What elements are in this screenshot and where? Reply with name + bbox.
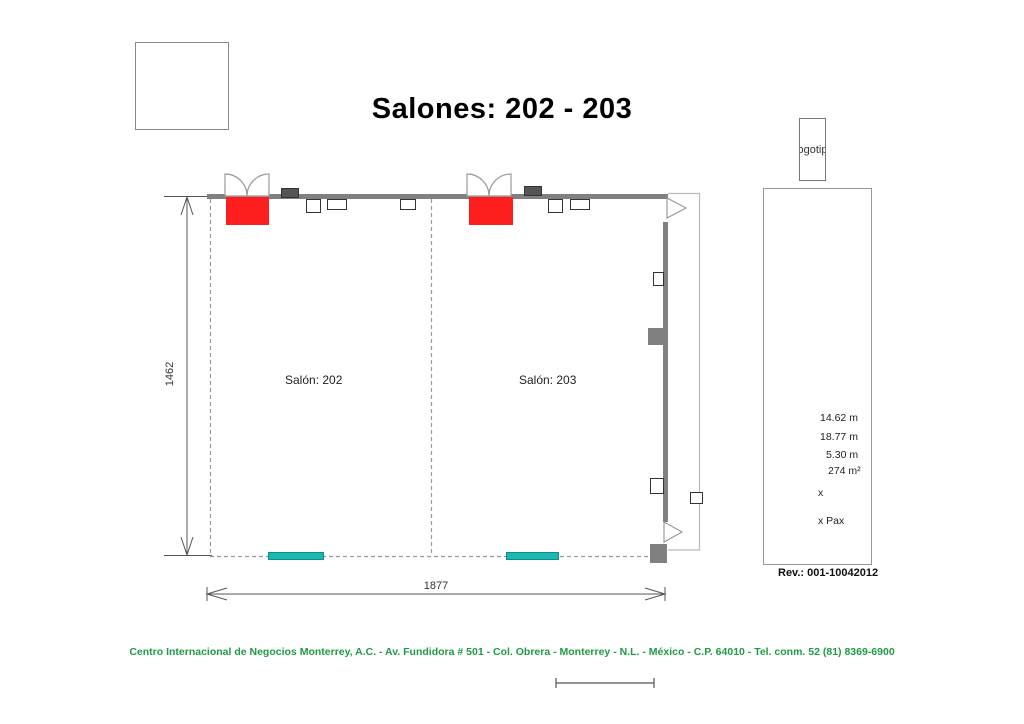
floor-strip-teal xyxy=(268,552,324,560)
wall-column-block xyxy=(650,544,667,563)
door-swing-icon xyxy=(664,522,682,542)
wall-fixture-icon xyxy=(327,199,347,210)
double-door-icon xyxy=(225,174,269,196)
wall-fixture-icon xyxy=(400,199,416,210)
top-wall xyxy=(207,194,668,199)
wall-fixture-icon xyxy=(690,492,703,504)
wall-fixture-icon xyxy=(524,186,542,196)
wall-fixture-icon xyxy=(548,199,563,213)
wall-fixture-icon xyxy=(653,272,664,286)
right-wall xyxy=(663,222,668,522)
room-label-203: Salón: 203 xyxy=(519,373,576,387)
room-boundaries xyxy=(210,199,655,557)
door-swing-icon xyxy=(667,198,686,218)
room-label-202: Salón: 202 xyxy=(285,373,342,387)
wall-fixture-icon xyxy=(281,188,299,198)
floor-strip-teal xyxy=(506,552,559,560)
wall-column-block xyxy=(648,328,665,345)
wall-fixture-icon xyxy=(306,199,321,213)
scale-bar xyxy=(556,678,654,688)
plan-linework xyxy=(0,0,1024,724)
door-threshold-red xyxy=(469,197,513,225)
double-door-icon xyxy=(467,174,511,196)
width-dimension-label: 1877 xyxy=(424,580,448,592)
door-threshold-red xyxy=(226,197,269,225)
wall-fixture-icon xyxy=(570,199,590,210)
footer-address: Centro Internacional de Negocios Monterr… xyxy=(129,646,894,658)
floor-plan-page: Salones: 202 - 203 Logotipo 14.62 m 18.7… xyxy=(0,0,1024,724)
height-dimension-label: 1462 xyxy=(164,362,176,386)
wall-fixture-icon xyxy=(650,478,664,494)
